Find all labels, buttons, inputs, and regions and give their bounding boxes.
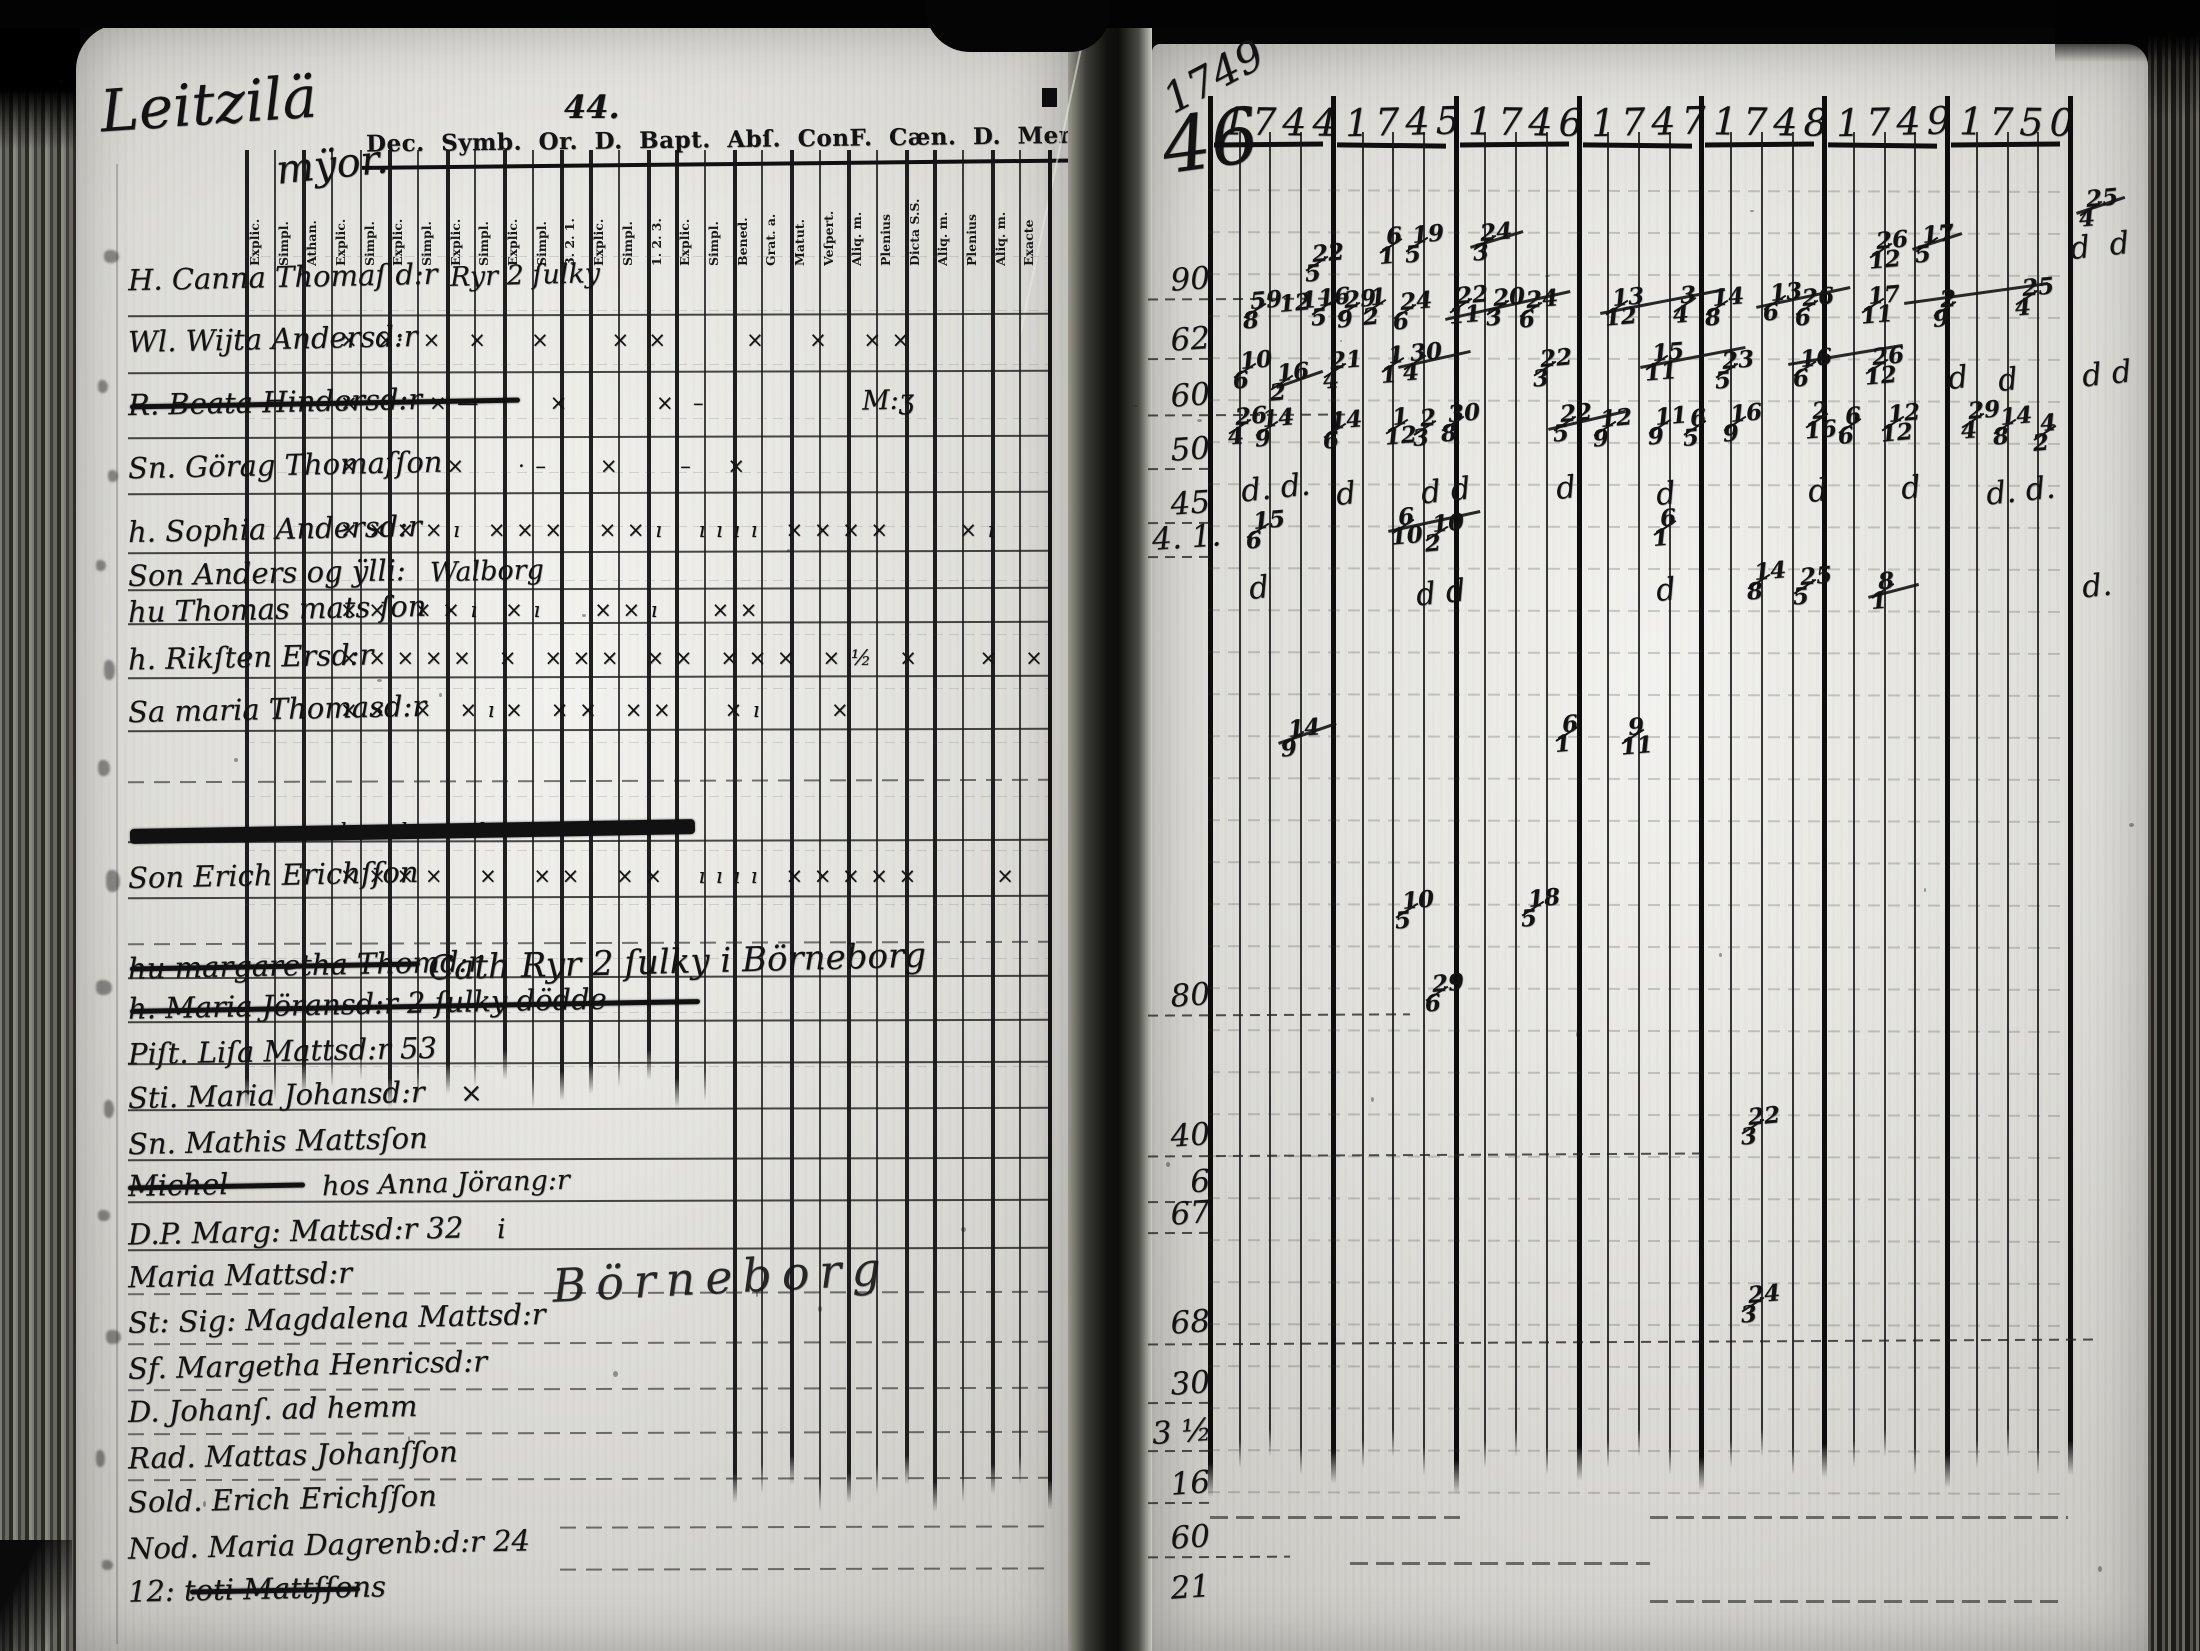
column-subheader-label: Exacte bbox=[1022, 158, 1046, 266]
script-d-entry: d bbox=[1899, 469, 1923, 507]
year-underline bbox=[1951, 142, 2060, 148]
date-entry: 61 bbox=[1380, 227, 1399, 266]
date-entry: 61 bbox=[1556, 715, 1575, 754]
scan-bottom-left-shadow bbox=[0, 1540, 72, 1651]
paper-speck bbox=[2098, 1566, 2102, 1572]
date-entry-month: 4 bbox=[1960, 420, 1994, 442]
date-entry: 1212 bbox=[1882, 404, 1917, 444]
year-label: 1750 bbox=[1959, 99, 2062, 144]
paper-speck bbox=[787, 549, 790, 552]
grid-line-vertical-thin bbox=[1638, 132, 1640, 1457]
paper-speck bbox=[439, 693, 442, 697]
column-subheader-label: Simpl. bbox=[363, 158, 387, 266]
date-entry-month: 6 bbox=[1792, 368, 1826, 390]
script-d-entry: d. d. bbox=[1984, 469, 2057, 512]
date-entry-month: 3 bbox=[1412, 429, 1430, 449]
date-entry-month: 6 bbox=[1392, 311, 1426, 333]
date-entry: 243 bbox=[1742, 1285, 1777, 1325]
script-d-entry: d. bbox=[2080, 567, 2113, 606]
grid-line-vertical-thin bbox=[1423, 132, 1425, 1475]
row-annotation: Ryr 2 ſulky bbox=[450, 258, 601, 293]
date-entry: 2211 bbox=[1450, 286, 1485, 326]
paper-speck bbox=[234, 758, 238, 762]
faint-rule bbox=[245, 364, 1048, 365]
grid-line-vertical-thin bbox=[1761, 132, 1763, 1457]
page-number: 44. bbox=[564, 88, 620, 126]
date-entry: 149 bbox=[1256, 409, 1291, 449]
year-label: 1744 bbox=[1222, 99, 1325, 144]
date-entry: 185 bbox=[1522, 889, 1557, 929]
script-d-entry: d bbox=[1334, 475, 1358, 513]
paper-speck bbox=[818, 1306, 822, 1312]
date-entry-month: 3 bbox=[1740, 1126, 1774, 1148]
script-d-entry: d d bbox=[2080, 354, 2133, 395]
date-entry: 166 bbox=[1794, 349, 1829, 389]
paper-speck bbox=[1955, 145, 1958, 147]
date-entry-month: 5 bbox=[1682, 429, 1700, 449]
ink-smudge bbox=[106, 870, 120, 892]
date-entry-month: 1 bbox=[1380, 366, 1398, 386]
date-entry-month: 1 bbox=[1652, 529, 1670, 549]
script-d-entry: d bbox=[1996, 361, 2020, 399]
faint-rule bbox=[245, 418, 1048, 419]
grid-line-vertical-thin bbox=[1515, 132, 1517, 1457]
book-gutter bbox=[1068, 0, 1152, 1651]
date-entry-month: 6 bbox=[1232, 370, 1266, 392]
date-entry: 156 bbox=[1247, 511, 1282, 551]
grid-line-vertical-thin bbox=[1607, 132, 1609, 1468]
communion-marks-row: × × · – × – × bbox=[340, 454, 1040, 478]
date-entry: 146 bbox=[1324, 411, 1359, 451]
date-entry: 148 bbox=[1748, 562, 1783, 602]
script-d-entry: d bbox=[1946, 359, 1970, 397]
paper-speck bbox=[408, 1436, 410, 1442]
row-annotation: hos Anna Jörang:r bbox=[322, 1165, 571, 1202]
date-entry-month: 12 bbox=[1868, 250, 1902, 272]
ink-smudge bbox=[96, 980, 112, 995]
column-subheader-label: Simpl. bbox=[621, 158, 645, 266]
faint-rule bbox=[245, 310, 1048, 311]
ink-smudge bbox=[108, 470, 118, 482]
person-name: D. Johanſ. ad hemm bbox=[128, 1389, 418, 1429]
date-entry-month: 9 bbox=[1932, 310, 1950, 330]
date-entry-month: 12 bbox=[1864, 366, 1898, 388]
date-entry: 65 bbox=[1684, 409, 1703, 448]
column-subheader-label: Plenius bbox=[965, 158, 989, 266]
column-subheader-label: Aliq. m. bbox=[936, 158, 960, 266]
date-entry-month: 3 bbox=[1740, 1304, 1774, 1326]
faint-rule bbox=[245, 688, 1048, 689]
date-entry: 66 bbox=[1839, 407, 1858, 446]
column-subheader-label: Simpl. bbox=[535, 158, 559, 266]
margin-total-label: 16 bbox=[1151, 1464, 1211, 1504]
column-subheader-label: Simpl. bbox=[707, 158, 731, 266]
date-entry: 214 bbox=[1324, 351, 1359, 391]
margin-total-label: 4. 1. bbox=[1151, 518, 1211, 558]
margin-label-underline bbox=[1148, 358, 1212, 360]
margin-label-underline bbox=[1148, 1450, 1212, 1452]
margin-label-underline bbox=[1148, 556, 1212, 558]
communion-marks-row: × × × × ı × × × × × ı ı ı ı ı × × × × × … bbox=[340, 518, 1040, 542]
communion-marks-row: × × × × × × × × × ı ı ı ı × × × × × × bbox=[340, 864, 1040, 888]
date-entry-month: 4 bbox=[1672, 306, 1690, 326]
column-subheader-label: Bened. bbox=[736, 158, 760, 266]
date-entry: 195 bbox=[1406, 225, 1441, 265]
paper-speck bbox=[1924, 888, 1926, 892]
date-entry: 169 bbox=[1724, 404, 1759, 444]
date-entry: 34 bbox=[1674, 286, 1693, 325]
grid-line-vertical-thin bbox=[1484, 132, 1486, 1468]
faint-rule bbox=[245, 634, 1048, 635]
ink-smudge bbox=[106, 1330, 121, 1344]
person-name: Son Anders og ÿlli: bbox=[128, 553, 406, 593]
grid-line-vertical-thick bbox=[1208, 96, 1213, 1497]
year-label: 1746 bbox=[1467, 99, 1570, 144]
date-entry-month: 1 bbox=[1378, 247, 1396, 267]
grid-line-vertical-thin bbox=[2037, 132, 2039, 1475]
column-subheader-label: Explic. bbox=[506, 158, 530, 266]
date-entry-month: 11 bbox=[1620, 736, 1654, 758]
date-entry: 308 bbox=[1442, 404, 1477, 444]
date-entry: 296 bbox=[1426, 974, 1461, 1014]
date-entry-month: 6 bbox=[1518, 309, 1552, 331]
date-entry-month: 8 bbox=[1704, 307, 1738, 329]
person-name: D.P. Marg: Mattsd:r 32 bbox=[128, 1210, 464, 1251]
faint-rule bbox=[245, 256, 1048, 257]
date-entry-month: 5 bbox=[1404, 244, 1438, 266]
paper-speck bbox=[377, 679, 382, 682]
column-subheader-label: Explic. bbox=[678, 158, 702, 266]
row-annotation: i bbox=[497, 1214, 506, 1245]
date-entry: 216 bbox=[1806, 401, 1841, 441]
date-entry: 105 bbox=[1396, 891, 1431, 931]
margin-label-underline bbox=[1148, 1402, 1212, 1404]
grid-line-vertical bbox=[1048, 150, 1052, 1510]
date-entry-month: 11 bbox=[1860, 305, 1894, 327]
paper-speck bbox=[2129, 823, 2134, 827]
date-entry-month: 6 bbox=[1837, 427, 1855, 447]
grid-line-vertical-thin bbox=[1300, 132, 1302, 1475]
column-subheader-label: Plenius bbox=[879, 158, 903, 266]
date-entry-month: 12 bbox=[1880, 423, 1914, 445]
script-d-entry: d d bbox=[1414, 573, 1467, 614]
date-entry-month: 6 bbox=[1245, 530, 1279, 552]
communion-marks-row: × ×· × × × × × × × × × bbox=[340, 328, 1040, 352]
year-underline bbox=[1705, 142, 1814, 148]
paper-speck bbox=[756, 1292, 758, 1297]
margin-total-label: 68 bbox=[1151, 1303, 1211, 1343]
year-label: 1749 bbox=[1836, 99, 1940, 145]
column-subheader-label: Simpl. bbox=[420, 158, 444, 266]
paper-speck bbox=[1340, 340, 1342, 342]
ink-smudge bbox=[104, 1100, 114, 1118]
row-annotation: M:ʒ bbox=[862, 384, 915, 416]
paper-speck bbox=[1166, 1162, 1170, 1167]
date-entry-month: 1 bbox=[1554, 735, 1572, 755]
column-subheader-label: Athan. bbox=[305, 158, 329, 266]
date-entry: 23 bbox=[1414, 409, 1433, 448]
grid-line-vertical-thin bbox=[1269, 132, 1271, 1457]
person-name: Sold. Erich Erichſſon bbox=[128, 1479, 438, 1519]
stray-rule-segment bbox=[1350, 1562, 1650, 1565]
column-subheader-label: Simpl. bbox=[277, 158, 301, 266]
date-entry: 223 bbox=[1534, 349, 1569, 389]
date-entry: 246 bbox=[1394, 292, 1429, 332]
date-entry-month: 3 bbox=[1532, 368, 1566, 390]
column-subheader-label: Simpl. bbox=[477, 158, 501, 266]
date-entry: 119 bbox=[1649, 407, 1684, 447]
date-entry-month: 2 bbox=[1424, 533, 1458, 555]
grid-line-vertical-thin bbox=[1669, 132, 1671, 1475]
date-entry-month: 9 bbox=[1647, 426, 1681, 448]
date-entry: 106 bbox=[1234, 351, 1269, 391]
grid-line-vertical-thin bbox=[2007, 132, 2009, 1457]
ink-smudge bbox=[104, 250, 119, 263]
row-annotation: × bbox=[460, 1078, 483, 1110]
ink-smudge bbox=[102, 1560, 113, 1570]
stray-rule-segment bbox=[1210, 1516, 1460, 1519]
communion-marks-row: × × × × × × × × × × × × × × × ½ × × × × bbox=[340, 646, 1040, 670]
header-end-blot bbox=[1042, 88, 1057, 107]
script-d-entry: d d bbox=[2068, 225, 2131, 267]
paper-speck bbox=[961, 1227, 966, 1232]
paper-speck bbox=[203, 1501, 206, 1507]
column-subheader-label: Veſpert. bbox=[822, 158, 846, 266]
margin-total-label: 62 bbox=[1151, 320, 1211, 360]
script-d-entry: d bbox=[1247, 569, 1271, 607]
paper-speck bbox=[1371, 1097, 1374, 1102]
grid-line-vertical-thin bbox=[1792, 132, 1794, 1475]
date-entry: 61 bbox=[1654, 509, 1673, 548]
ink-smudge bbox=[98, 760, 110, 776]
column-subheader-label: 3. 2. 1. bbox=[563, 158, 587, 266]
ink-smudge bbox=[96, 1450, 105, 1467]
column-subheader-label: Explic. bbox=[592, 158, 616, 266]
page-title-script: Leitzilä bbox=[98, 63, 319, 146]
scan-top-blob bbox=[925, 0, 1110, 52]
grid-line-vertical-thin bbox=[1546, 132, 1548, 1475]
register-scan-scene: Leitzilä mÿor. 44. Dec. Symb. Or. D. Bap… bbox=[0, 0, 2200, 1651]
grid-line-vertical-thin bbox=[1362, 132, 1364, 1468]
column-subheader-label: Explic. bbox=[248, 158, 272, 266]
faint-rule bbox=[245, 742, 1048, 743]
date-entry: 235 bbox=[1716, 351, 1751, 391]
margin-label-underline bbox=[1148, 468, 1212, 470]
margin-label-underline bbox=[1148, 1232, 1212, 1234]
paper-speck bbox=[1750, 210, 1754, 212]
date-entry: 1711 bbox=[1862, 286, 1897, 326]
ink-smudge bbox=[98, 380, 108, 393]
paper-speck bbox=[60, 80, 62, 82]
year-label: 1748 bbox=[1713, 99, 1816, 144]
year-label: 1745 bbox=[1344, 99, 1448, 145]
book-left-edge-texture bbox=[0, 0, 80, 1651]
column-subheader-label: Dicta S.S. bbox=[908, 158, 932, 266]
date-entry-month: 8 bbox=[1992, 426, 2026, 448]
year-underline bbox=[1460, 142, 1569, 148]
script-d-entry: d bbox=[1654, 571, 1678, 609]
paper-speck bbox=[1576, 1032, 1578, 1037]
year-label: 1747 bbox=[1590, 99, 1694, 145]
person-name: Sn. Mathis Mattsſon bbox=[128, 1121, 428, 1161]
paper-speck bbox=[1545, 275, 1550, 277]
grid-line-vertical-thin bbox=[1853, 132, 1855, 1468]
column-subheader-label: Grat. a. bbox=[764, 158, 788, 266]
grid-line-vertical-thin bbox=[1239, 132, 1241, 1468]
communion-marks-row: × × × × ı × ı × × ı × × bbox=[340, 598, 1040, 622]
script-d-entry: d d bbox=[1419, 471, 1472, 512]
person-name: Piſt. Liſa Mattsd:r 53 bbox=[128, 1031, 438, 1071]
date-entry: 42 bbox=[2034, 414, 2053, 453]
date-entry: 2612 bbox=[1870, 231, 1905, 271]
date-entry-month: 9 bbox=[1722, 423, 1756, 445]
date-entry: 148 bbox=[1706, 288, 1741, 328]
page-crease bbox=[116, 164, 118, 1644]
margin-total-label: 60 bbox=[1151, 376, 1211, 416]
column-subheader-label: Aliq. m. bbox=[850, 158, 874, 266]
grid-line-vertical-thin bbox=[1976, 132, 1978, 1468]
paper-speck bbox=[1719, 953, 1722, 957]
margin-total-label: 80 bbox=[1151, 976, 1211, 1016]
date-entry-month: 16 bbox=[1804, 420, 1838, 442]
date-entry-month: 9 bbox=[1254, 428, 1288, 450]
communion-marks-row: × × × × ı × × × × × × ı × bbox=[340, 698, 1040, 722]
script-d-entry: d. d. bbox=[1239, 466, 1312, 509]
date-entry-month: 9 bbox=[1592, 428, 1626, 450]
person-name: H. Canna Thomaſ d:r bbox=[128, 257, 438, 297]
script-d-entry: d bbox=[1806, 472, 1830, 510]
ink-smudge bbox=[96, 560, 106, 571]
date-entry-month: 5 bbox=[1520, 908, 1554, 930]
margin-total-label: 60 bbox=[1151, 1518, 1211, 1558]
date-entry-month: 5 bbox=[1394, 910, 1428, 932]
person-name: h. Rikſten Ersd:r bbox=[128, 637, 374, 676]
column-subheader-label: Matut. bbox=[793, 158, 817, 266]
faint-rule bbox=[245, 796, 1048, 797]
stray-rule-segment bbox=[1650, 1600, 2060, 1603]
year-underline bbox=[1214, 142, 1323, 148]
date-entry-month: 5 bbox=[1304, 263, 1338, 285]
date-entry-month: 5 bbox=[1714, 370, 1748, 392]
column-subheader-label: Aliq. m. bbox=[994, 158, 1018, 266]
margin-total-label: 21 bbox=[1151, 1568, 1211, 1608]
margin-label-underline bbox=[1148, 1502, 1212, 1504]
margin-total-label: 67 bbox=[1151, 1194, 1211, 1234]
date-entry-month: 8 bbox=[1746, 581, 1780, 603]
paper-speck bbox=[1135, 405, 1138, 407]
date-entry: 911 bbox=[1622, 717, 1657, 757]
column-subheader-label: 1. 2. 3. bbox=[650, 158, 674, 266]
column-subheader-label: Explic. bbox=[391, 158, 415, 266]
date-entry-month: 6 bbox=[1322, 430, 1356, 452]
scan-top-right-shadow bbox=[2055, 0, 2200, 62]
faint-rule bbox=[245, 904, 1048, 905]
column-subheader-label: Explic. bbox=[449, 158, 473, 266]
stray-rule-segment bbox=[1650, 1516, 2068, 1519]
date-entry: 225 bbox=[1306, 244, 1341, 284]
date-entry: 2612 bbox=[1866, 347, 1901, 387]
paper-speck bbox=[613, 1371, 618, 1377]
date-entry-month: 2 bbox=[2032, 434, 2050, 454]
margin-total-label: 90 bbox=[1151, 260, 1211, 300]
grid-line-vertical-thin bbox=[1914, 132, 1916, 1475]
margin-total-label: 50 bbox=[1151, 430, 1211, 470]
row-annotation: Walborg bbox=[430, 555, 545, 589]
paper-speck bbox=[992, 484, 994, 487]
paper-speck bbox=[1197, 419, 1202, 422]
date-entry-month: 4 bbox=[1322, 370, 1356, 392]
date-entry-month: 8 bbox=[1242, 310, 1276, 332]
date-entry: 223 bbox=[1742, 1107, 1777, 1147]
column-subheader-label: Explic. bbox=[334, 158, 358, 266]
margin-total-label: 30 bbox=[1151, 1364, 1211, 1404]
faint-rule bbox=[245, 850, 1048, 851]
ink-smudge bbox=[104, 660, 115, 680]
grid-line-vertical-thick bbox=[1577, 96, 1582, 1481]
grid-line-vertical-thin bbox=[1730, 132, 1732, 1468]
grid-line-vertical-thin bbox=[1884, 132, 1886, 1457]
date-entry-month: 5 bbox=[1792, 586, 1826, 608]
date-entry: 148 bbox=[1994, 407, 2029, 447]
date-entry-month: 8 bbox=[1440, 423, 1474, 445]
date-entry: 12 bbox=[1364, 288, 1383, 327]
margin-total-label: 40 bbox=[1151, 1116, 1211, 1156]
book-right-edge-texture bbox=[2148, 0, 2200, 1651]
date-entry-month: 6 bbox=[1794, 307, 1828, 329]
paper-speck bbox=[582, 614, 586, 617]
margin-total-label: 3 ½ bbox=[1151, 1412, 1211, 1452]
script-d-entry: d bbox=[1554, 469, 1578, 507]
grid-line-vertical-thick bbox=[2068, 96, 2073, 1475]
ink-smudge bbox=[98, 1210, 110, 1221]
date-entry: 255 bbox=[1794, 567, 1829, 607]
person-name: Maria Mattsd:r bbox=[128, 1256, 353, 1295]
date-entry-month: 2 bbox=[1362, 308, 1380, 328]
date-entry-month: 6 bbox=[1424, 993, 1458, 1015]
date-entry-month: 4 bbox=[2014, 297, 2048, 319]
